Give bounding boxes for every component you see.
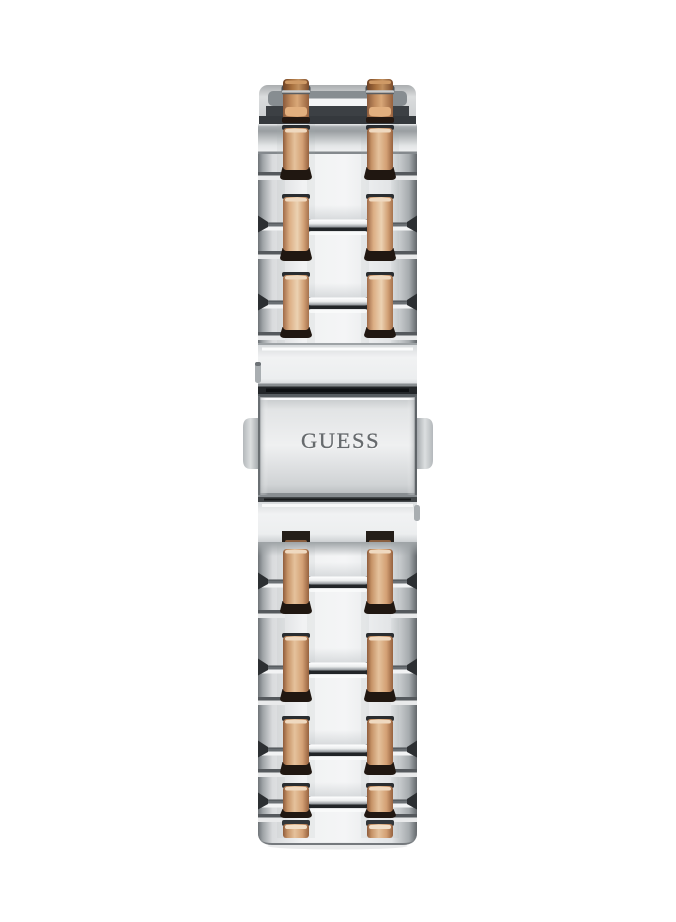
svg-text:GUESS: GUESS [301, 428, 380, 453]
